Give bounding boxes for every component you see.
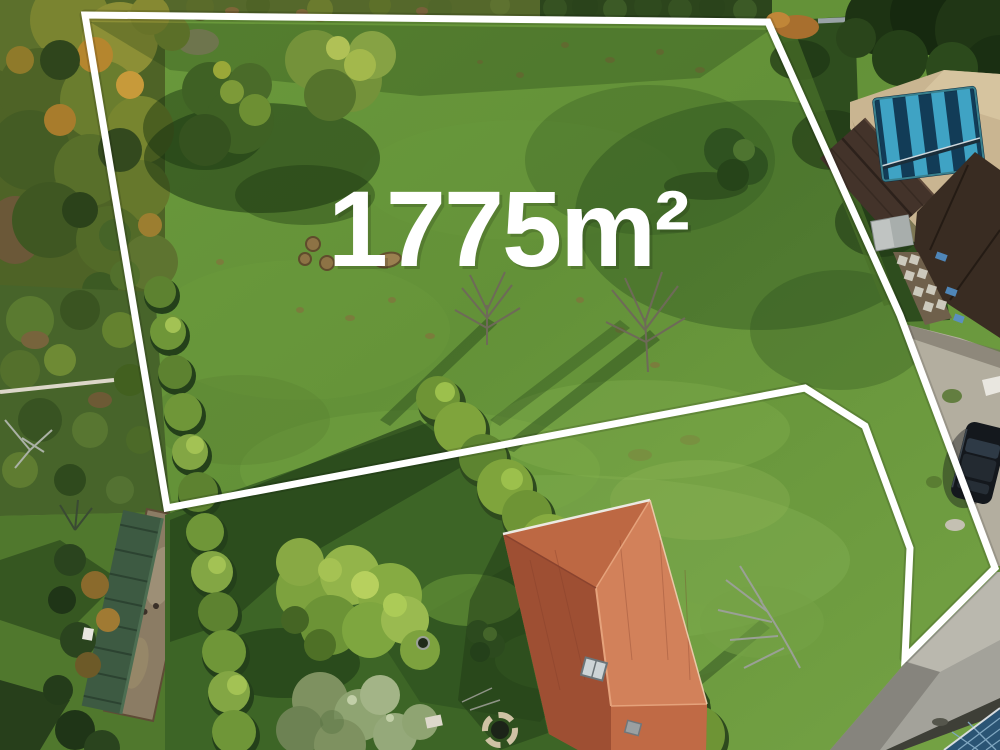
listing-photo: 1775m² 1775m² — [0, 0, 1000, 750]
chimney — [625, 720, 642, 735]
aerial-photo: 1775m² 1775m² — [0, 0, 1000, 750]
grey-shed — [871, 215, 914, 251]
area-label-group: 1775m² 1775m² — [328, 168, 691, 292]
white-chair — [82, 627, 94, 641]
area-label: 1775m² — [328, 168, 688, 289]
round-planter — [417, 637, 429, 649]
